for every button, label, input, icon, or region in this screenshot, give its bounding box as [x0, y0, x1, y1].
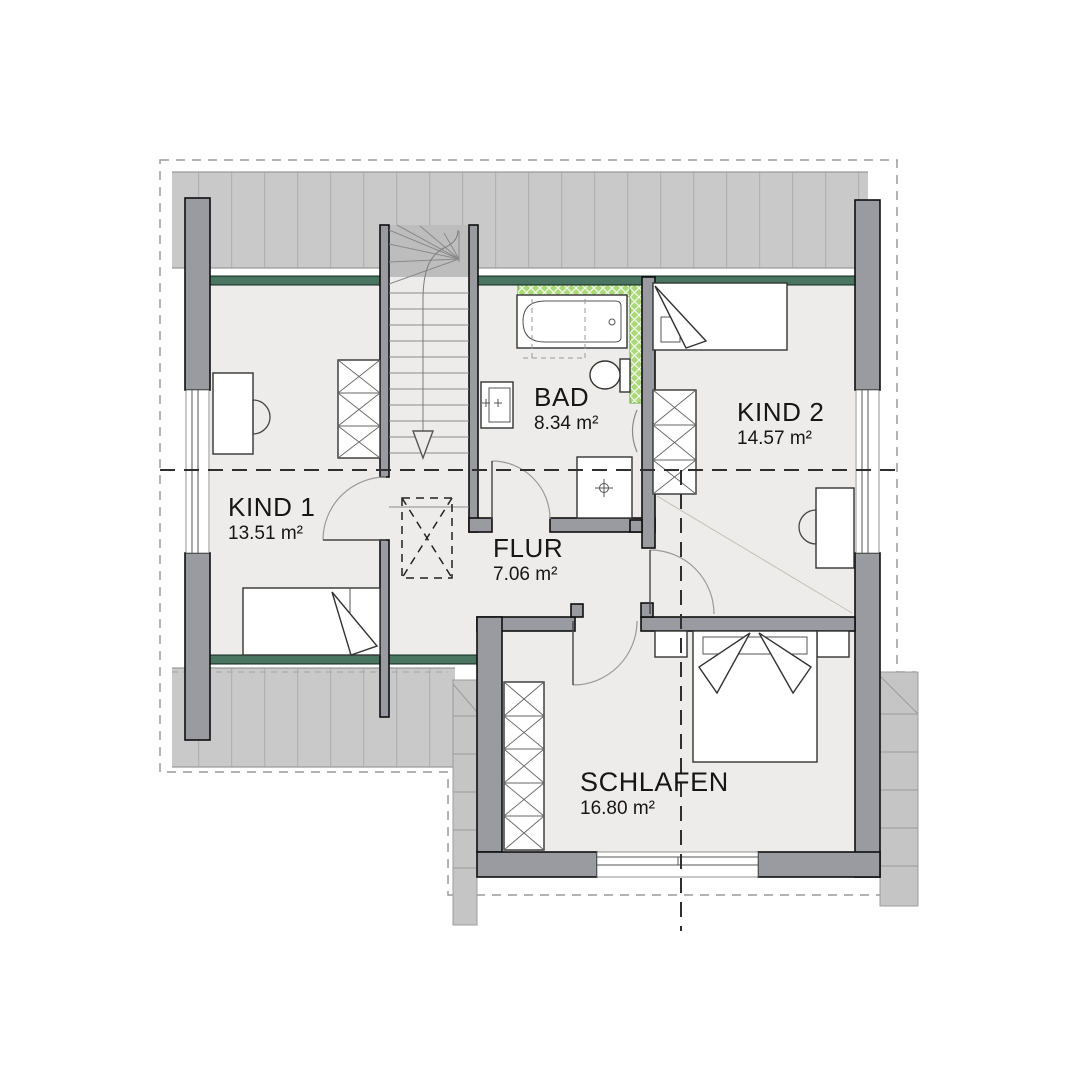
floor-plan: KIND 1 13.51 m² BAD 8.34 m² KIND 2 14.57…	[0, 0, 1080, 1080]
dormer-roof-steps-left	[453, 680, 477, 925]
roof-hatch-top-seams	[172, 172, 868, 268]
wall-bad-kind2-foot	[630, 520, 642, 532]
dormer-roof-steps-right	[880, 672, 918, 906]
room-name: FLUR	[493, 535, 563, 562]
room-area: 7.06 m²	[493, 565, 563, 585]
nightstand-left	[655, 631, 687, 657]
floor-flur-lower	[391, 617, 477, 655]
room-area: 8.34 m²	[534, 414, 598, 434]
double-bed	[693, 631, 817, 762]
wardrobe-kind2	[653, 390, 696, 494]
room-area: 16.80 m²	[580, 799, 729, 819]
floor-door-gap	[575, 617, 641, 631]
wardrobe-kind1	[338, 360, 380, 458]
room-area: 13.51 m²	[228, 524, 315, 544]
wall-left-lower	[185, 553, 210, 740]
bed-kind2	[653, 283, 787, 350]
wall-right-upper	[855, 200, 880, 390]
window-schlafen-south	[597, 852, 758, 877]
room-area: 14.57 m²	[737, 429, 824, 449]
wall-stair-right	[469, 225, 478, 532]
window-kind1-west	[186, 390, 209, 553]
room-label-bad: BAD 8.34 m²	[534, 384, 598, 434]
roof-hatch-bottom-seams	[172, 668, 455, 767]
wall-schlafen-north-right	[641, 617, 855, 631]
wall-stair-left-lower	[380, 540, 389, 717]
room-label-kind1: KIND 1 13.51 m²	[228, 494, 315, 544]
room-label-flur: FLUR 7.06 m²	[493, 535, 563, 585]
wall-right-lower	[855, 553, 880, 877]
room-name: KIND 2	[737, 399, 824, 426]
room-name: SCHLAFEN	[580, 768, 729, 796]
door-frame-notch-right	[641, 603, 653, 617]
room-label-schlafen: SCHLAFEN 16.80 m²	[580, 768, 729, 819]
room-label-kind2: KIND 2 14.57 m²	[737, 399, 824, 449]
window-kind2-east	[856, 390, 879, 553]
desk-kind2	[816, 488, 854, 568]
shower	[577, 457, 632, 518]
wall-left-upper	[185, 198, 210, 390]
room-name: BAD	[534, 384, 598, 411]
green-wall-top-left	[210, 276, 380, 285]
wall-stair-left-upper	[380, 225, 389, 477]
wall-schlafen-south-left	[477, 852, 597, 877]
washbasin	[481, 382, 513, 428]
wall-schlafen-west	[477, 617, 502, 852]
bed-kind1	[243, 588, 380, 655]
wall-bad-south-stub	[469, 518, 492, 532]
door-frame-notch-left	[571, 604, 583, 617]
nightstand-right	[817, 631, 849, 657]
wardrobe-schlafen	[504, 682, 544, 850]
room-name: KIND 1	[228, 494, 315, 521]
wall-schlafen-south-right	[758, 852, 880, 877]
desk-kind1	[213, 373, 253, 454]
green-wall-kind1-south	[210, 655, 477, 664]
